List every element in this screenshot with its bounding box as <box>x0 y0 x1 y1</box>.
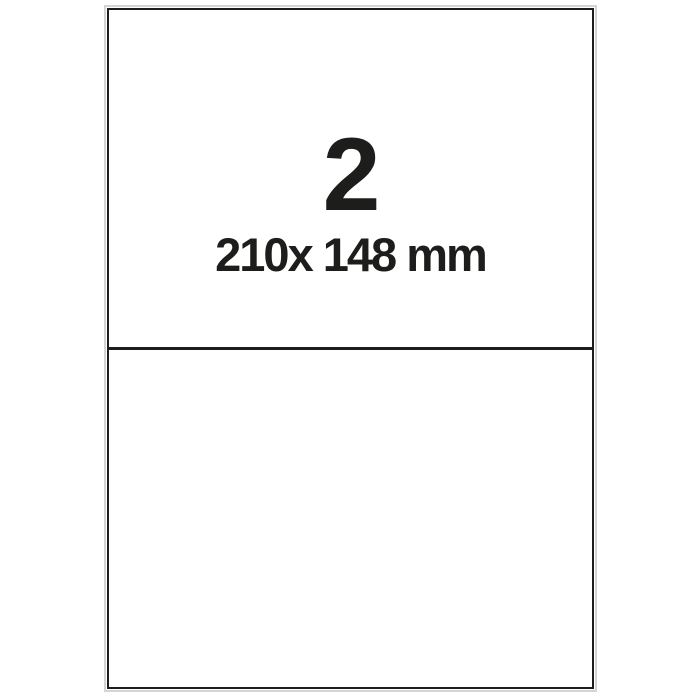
label-cell-bottom <box>109 350 592 687</box>
label-die-cut-outline: 2 210x 148 mm <box>107 8 594 689</box>
product-image: 2 210x 148 mm <box>0 0 700 700</box>
label-info: 2 210x 148 mm <box>215 128 486 281</box>
label-sheet: 2 210x 148 mm <box>104 5 597 692</box>
label-cell-top: 2 210x 148 mm <box>109 10 592 350</box>
label-count: 2 <box>323 128 379 224</box>
label-dimensions: 210x 148 mm <box>215 229 486 281</box>
